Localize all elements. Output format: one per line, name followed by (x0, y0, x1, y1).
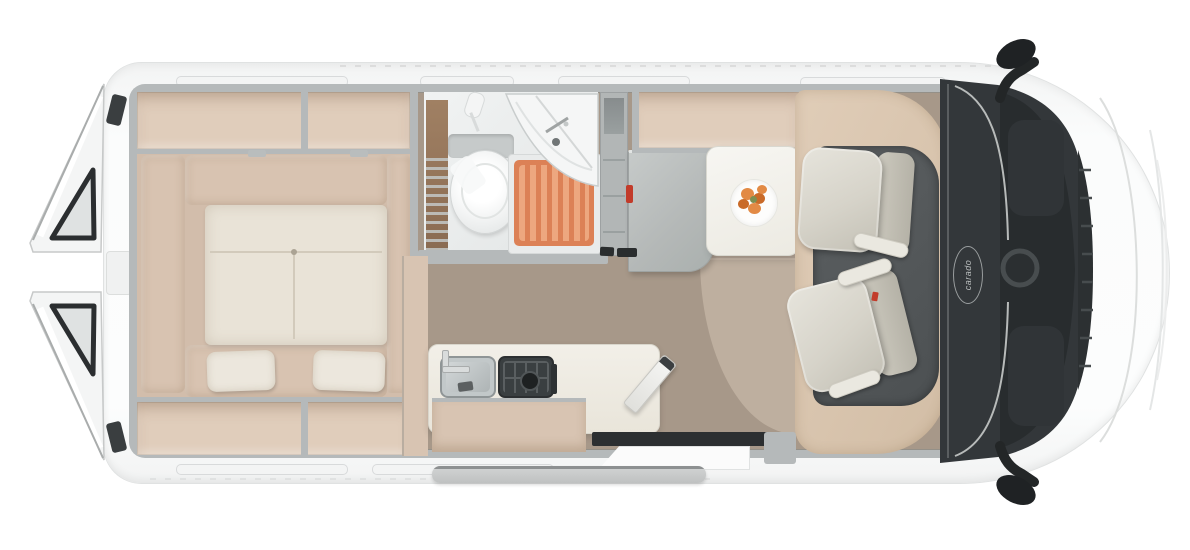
bathroom-cabinet-column (426, 100, 448, 250)
shelf-edge (603, 231, 625, 233)
food-item (757, 185, 767, 194)
door-jamb (764, 432, 796, 464)
rear-door-open-top (30, 84, 104, 252)
entry-threshold (592, 432, 778, 446)
duckboard-slats (519, 165, 589, 241)
overhead-locker-top-row (137, 92, 410, 154)
pillow (206, 350, 275, 392)
brand-logo-badge: carado (940, 245, 996, 305)
locker-divider (301, 402, 308, 455)
swivel-seat-driver (796, 144, 915, 258)
overhead-locker-bottom-row (137, 397, 410, 455)
belt-mount (350, 150, 368, 157)
overhead-locker-dinette (632, 92, 798, 153)
camper-van-floorplan: carado (0, 0, 1190, 550)
rear-door-open-bottom (30, 292, 104, 460)
shower-duckboard (514, 160, 594, 246)
locker-divider (632, 92, 639, 148)
dinette-table (706, 146, 800, 256)
bed-backrest-left (141, 155, 185, 393)
towel-rack (426, 158, 448, 250)
gas-hob (498, 356, 554, 398)
food-item (748, 203, 761, 214)
breakfast-plate (730, 179, 778, 227)
wardrobe-opening (604, 98, 624, 134)
logo-text: carado (963, 260, 973, 291)
sliding-door-open (432, 466, 706, 483)
pillow (312, 350, 385, 392)
bed-mattress (205, 205, 387, 345)
bed-cushion-top (185, 155, 387, 205)
mattress-seam (293, 251, 295, 339)
locker-divider (301, 92, 308, 149)
roof-awning-rail (340, 65, 1040, 67)
wardrobe-column (600, 92, 628, 256)
kitchen-cabinet-front (432, 398, 586, 452)
bathroom-door-open (628, 150, 714, 272)
door-retainer (617, 248, 637, 257)
shelf-edge (603, 195, 625, 197)
window-bed-bottom (176, 464, 348, 475)
hob-knobs (551, 364, 557, 394)
door-hinge (600, 247, 614, 257)
food-garnish (750, 196, 757, 203)
door-handle-red (626, 185, 633, 203)
hob-burner (520, 371, 540, 391)
kitchen-side-panel (402, 256, 428, 456)
shelf-edge (603, 159, 625, 161)
mattress-button (291, 249, 297, 255)
logo-oval: carado (953, 246, 983, 304)
faucet-spout (442, 366, 470, 373)
belt-mount (248, 150, 266, 157)
